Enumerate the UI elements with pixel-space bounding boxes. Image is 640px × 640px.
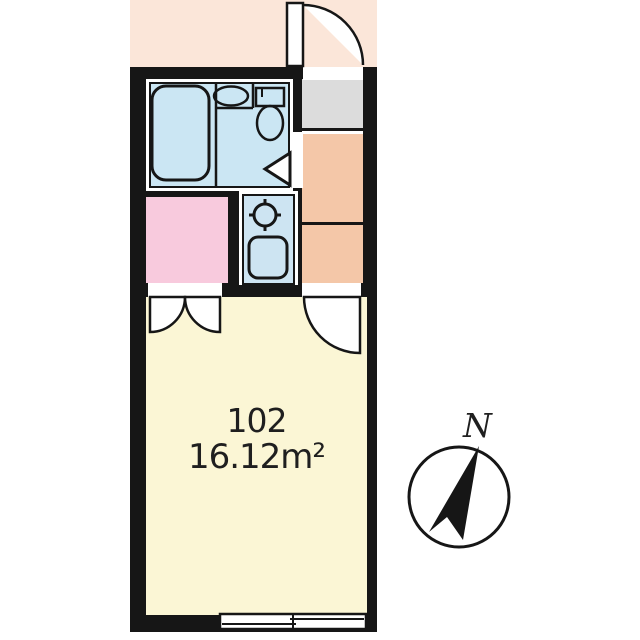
compass xyxy=(409,446,509,547)
room-door-opening xyxy=(302,283,361,297)
floorplan-canvas: 102 16.12m² N xyxy=(0,0,640,640)
unit-number: 102 xyxy=(146,404,367,439)
compass-circle xyxy=(409,447,509,547)
compass-needle-icon xyxy=(429,446,479,540)
closet-door-opening xyxy=(148,283,222,297)
kitchen-floor xyxy=(242,194,295,285)
unit-label: 102 16.12m² xyxy=(146,404,367,475)
bathroom xyxy=(146,79,293,191)
closet-room xyxy=(146,197,228,283)
entrance-opening xyxy=(303,67,363,80)
hallway xyxy=(302,134,363,283)
kitchen xyxy=(239,191,298,285)
bathroom-floor xyxy=(149,82,290,188)
north-label: N xyxy=(463,406,492,445)
bathroom-door-opening xyxy=(291,132,303,188)
exterior-area xyxy=(130,0,377,68)
unit-area: 16.12m² xyxy=(146,439,367,475)
entrance-genkan xyxy=(302,79,363,131)
hallway-step-line xyxy=(302,222,363,225)
